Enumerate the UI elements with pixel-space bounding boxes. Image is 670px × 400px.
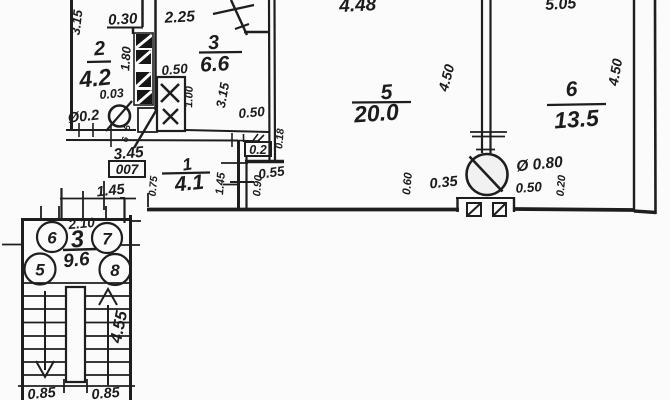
svg-text:1.45: 1.45	[214, 171, 228, 195]
svg-text:0.90: 0.90	[251, 174, 265, 197]
svg-text:9.6: 9.6	[62, 249, 91, 273]
svg-text:5: 5	[35, 261, 45, 280]
svg-text:Ø0.2: Ø0.2	[67, 107, 100, 126]
svg-text:3: 3	[207, 32, 220, 55]
svg-text:4.48: 4.48	[338, 0, 377, 17]
svg-text:20.0: 20.0	[352, 98, 400, 127]
svg-text:3.45: 3.45	[113, 144, 145, 164]
svg-text:0.20: 0.20	[555, 174, 569, 197]
svg-text:0.85: 0.85	[91, 385, 121, 400]
svg-text:007: 007	[116, 162, 140, 177]
svg-text:6: 6	[47, 229, 57, 248]
svg-text:6: 6	[565, 78, 579, 102]
svg-text:0.50: 0.50	[161, 61, 189, 78]
svg-text:0.85: 0.85	[27, 385, 57, 400]
svg-text:7: 7	[102, 230, 113, 249]
svg-text:2: 2	[92, 38, 106, 61]
svg-text:1.80: 1.80	[118, 46, 134, 71]
svg-text:0.03: 0.03	[99, 86, 125, 102]
svg-text:0.30: 0.30	[108, 10, 139, 29]
svg-text:0.50: 0.50	[238, 104, 266, 121]
svg-text:2.25: 2.25	[163, 8, 195, 27]
svg-text:1.00: 1.00	[183, 85, 196, 108]
svg-text:0.60: 0.60	[401, 171, 415, 195]
svg-text:13.5: 13.5	[553, 104, 601, 133]
svg-text:6.6: 6.6	[199, 52, 230, 77]
svg-text:0.18: 0.18	[273, 128, 287, 150]
svg-text:5.05: 5.05	[545, 0, 578, 14]
svg-text:8: 8	[110, 261, 120, 280]
svg-text:0.35: 0.35	[429, 173, 460, 192]
svg-text:0.2: 0.2	[249, 143, 266, 157]
svg-text:4.1: 4.1	[173, 171, 205, 197]
svg-text:3.15: 3.15	[68, 8, 86, 36]
svg-text:0.50: 0.50	[515, 179, 543, 196]
